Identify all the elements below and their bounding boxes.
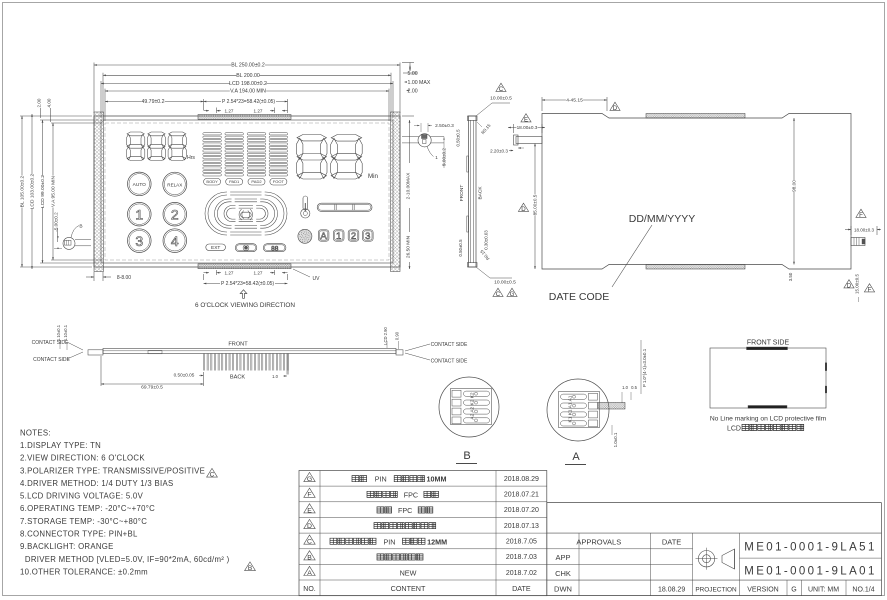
svg-text:9.BACKLIGHT: ORANGE: 9.BACKLIGHT: ORANGE bbox=[20, 542, 114, 551]
svg-text:B: B bbox=[307, 554, 312, 561]
svg-text:0.50±0.5: 0.50±0.5 bbox=[458, 239, 463, 257]
svg-text:4.00: 4.00 bbox=[47, 98, 52, 107]
svg-text:1.0±0.1: 1.0±0.1 bbox=[613, 432, 618, 447]
svg-text:PIN: PIN bbox=[384, 537, 396, 546]
svg-text:PAD2: PAD2 bbox=[251, 179, 262, 184]
svg-text:NOTES:: NOTES: bbox=[20, 428, 51, 437]
svg-text:LCD 198.00±0.2: LCD 198.00±0.2 bbox=[229, 81, 267, 87]
svg-text:RELAX: RELAX bbox=[167, 182, 182, 187]
svg-text:2018.07.20: 2018.07.20 bbox=[504, 507, 539, 514]
svg-text:10.00±0.5: 10.00±0.5 bbox=[494, 280, 516, 286]
svg-text:2018.08.29: 2018.08.29 bbox=[504, 476, 539, 483]
svg-text:BL 250.00±0.2: BL 250.00±0.2 bbox=[231, 63, 265, 69]
svg-text:4: 4 bbox=[171, 233, 179, 249]
svg-text:DRIVER METHOD [VLED=5.0V, IF=9: DRIVER METHOD [VLED=5.0V, IF=90*2mA, 60c… bbox=[20, 555, 230, 564]
svg-text:18.00±0.3: 18.00±0.3 bbox=[854, 227, 874, 232]
svg-text:1.0: 1.0 bbox=[622, 385, 628, 390]
svg-text:6.OPERATING TEMP: -20°C~+70°C: 6.OPERATING TEMP: -20°C~+70°C bbox=[20, 504, 155, 513]
svg-text:2.VIEW DIRECTION: 6 O'CLOCK: 2.VIEW DIRECTION: 6 O'CLOCK bbox=[20, 454, 145, 463]
svg-text:10.00±0.5: 10.00±0.5 bbox=[490, 96, 512, 102]
svg-text:18.08.29: 18.08.29 bbox=[658, 587, 685, 594]
svg-text:CONTENT: CONTENT bbox=[391, 584, 426, 593]
svg-text:BODY: BODY bbox=[206, 179, 218, 184]
svg-text:DD/MM/YYYY: DD/MM/YYYY bbox=[629, 213, 696, 225]
svg-text:C: C bbox=[496, 291, 501, 298]
svg-text:No Line marking on LCD protect: No Line marking on LCD protective film bbox=[710, 416, 827, 423]
svg-text:1.10±0.1: 1.10±0.1 bbox=[56, 324, 61, 341]
svg-text:49.79±0.2: 49.79±0.2 bbox=[141, 99, 164, 105]
svg-text:B: B bbox=[248, 565, 252, 572]
svg-text:CONTACT SIDE: CONTACT SIDE bbox=[431, 359, 468, 365]
svg-text:0.50±0.5: 0.50±0.5 bbox=[456, 129, 461, 147]
svg-text:98.00: 98.00 bbox=[792, 180, 797, 192]
svg-text:E: E bbox=[524, 116, 528, 123]
svg-text:26.50 MIN: 26.50 MIN bbox=[406, 235, 412, 258]
svg-text:D: D bbox=[613, 105, 618, 112]
svg-text:DWN: DWN bbox=[554, 585, 572, 594]
svg-text:LCD 99.00±0.2: LCD 99.00±0.2 bbox=[40, 175, 46, 208]
svg-text:6 O'CLOCK VIEWING DIRECTION: 6 O'CLOCK VIEWING DIRECTION bbox=[195, 302, 295, 309]
svg-text:EXT: EXT bbox=[211, 245, 220, 251]
svg-text:0.5: 0.5 bbox=[631, 385, 637, 390]
svg-text:APP: APP bbox=[555, 553, 570, 562]
svg-text:FRONT: FRONT bbox=[459, 185, 465, 202]
svg-text:1.27: 1.27 bbox=[254, 109, 263, 114]
svg-text:A2 A2 K2 K2: A2 A2 K2 K2 bbox=[470, 392, 476, 420]
svg-text:VERSION: VERSION bbox=[747, 587, 779, 594]
svg-text:V.A 95.00 MIN: V.A 95.00 MIN bbox=[51, 175, 57, 207]
svg-text:A: A bbox=[572, 451, 580, 463]
svg-text:FOOT: FOOT bbox=[273, 179, 285, 184]
svg-text:1: 1 bbox=[435, 155, 438, 160]
svg-text:CONTACT SIDE: CONTACT SIDE bbox=[33, 357, 70, 363]
svg-text:CONTACT SIDE: CONTACT SIDE bbox=[431, 342, 468, 348]
svg-text:1.0: 1.0 bbox=[272, 374, 278, 379]
svg-text:UV: UV bbox=[313, 276, 321, 282]
svg-text:K1 K1 A1 A1: K1 K1 A1 A1 bbox=[568, 395, 574, 422]
svg-text:FPC: FPC bbox=[398, 506, 412, 515]
svg-text:2-10.00MAX: 2-10.00MAX bbox=[406, 172, 412, 199]
svg-text:3.50: 3.50 bbox=[788, 272, 793, 281]
svg-text:5.00: 5.00 bbox=[408, 71, 418, 77]
svg-text:E: E bbox=[307, 507, 312, 514]
svg-text:C: C bbox=[499, 86, 504, 93]
svg-text:5.00±0.2: 5.00±0.2 bbox=[442, 148, 447, 166]
svg-text:2018.07.13: 2018.07.13 bbox=[504, 523, 539, 530]
svg-text:1.00 MAX: 1.00 MAX bbox=[408, 80, 431, 86]
svg-text:F: F bbox=[868, 286, 872, 293]
svg-text:5.LCD DRIVING VOLTAGE: 5.0V: 5.LCD DRIVING VOLTAGE: 5.0V bbox=[20, 492, 144, 501]
svg-text:10MM: 10MM bbox=[427, 475, 447, 484]
svg-text:8-8.00: 8-8.00 bbox=[117, 275, 131, 281]
svg-text:B: B bbox=[463, 450, 470, 462]
svg-text:BACK: BACK bbox=[478, 186, 484, 200]
svg-text:V.A 194.00 MIN: V.A 194.00 MIN bbox=[230, 89, 266, 95]
svg-text:ME01-0001-9LA01: ME01-0001-9LA01 bbox=[744, 566, 877, 578]
svg-text:2018.7.03: 2018.7.03 bbox=[506, 554, 537, 561]
svg-text:1.10±0.1: 1.10±0.1 bbox=[63, 324, 68, 341]
svg-text:2.00: 2.00 bbox=[408, 89, 418, 95]
svg-text:15.00±0.5: 15.00±0.5 bbox=[855, 274, 860, 294]
svg-text:1.27: 1.27 bbox=[254, 271, 263, 276]
svg-text:A: A bbox=[307, 570, 312, 577]
svg-text:LCD 103.00±0.2: LCD 103.00±0.2 bbox=[30, 173, 36, 209]
svg-text:88: 88 bbox=[271, 245, 279, 252]
svg-text:PROJECTION: PROJECTION bbox=[695, 587, 737, 594]
svg-text:NO.: NO. bbox=[303, 586, 316, 593]
svg-text:2018.7.02: 2018.7.02 bbox=[506, 570, 537, 577]
svg-text:C: C bbox=[307, 539, 312, 546]
svg-text:LCD: LCD bbox=[727, 426, 741, 433]
svg-text:C: C bbox=[210, 472, 215, 479]
svg-text:APPROVALS: APPROVALS bbox=[576, 538, 621, 547]
svg-text:1.DISPLAY TYPE: TN: 1.DISPLAY TYPE: TN bbox=[20, 441, 101, 450]
svg-text:PAD1: PAD1 bbox=[229, 179, 240, 184]
svg-text:FRONT SIDE: FRONT SIDE bbox=[747, 340, 790, 347]
svg-text:PIN: PIN bbox=[375, 475, 387, 484]
svg-text:P 1.0*(4-1)=3.0±0.1: P 1.0*(4-1)=3.0±0.1 bbox=[642, 348, 647, 387]
svg-text:Hrs: Hrs bbox=[187, 155, 195, 161]
svg-text:FPC: FPC bbox=[404, 490, 418, 499]
svg-text:D: D bbox=[521, 206, 526, 213]
svg-text:18.00±0.3: 18.00±0.3 bbox=[517, 125, 538, 130]
svg-text:8.CONNECTOR TYPE: PIN+BL: 8.CONNECTOR TYPE: PIN+BL bbox=[20, 530, 138, 539]
svg-text:B: B bbox=[79, 224, 82, 230]
svg-text:1: 1 bbox=[135, 207, 143, 223]
svg-text:69.79±0.5: 69.79±0.5 bbox=[141, 385, 163, 391]
svg-text:D: D bbox=[307, 523, 312, 530]
svg-text:4.DRIVER METHOD: 1/4 DUTY 1/3: 4.DRIVER METHOD: 1/4 DUTY 1/3 BIAS bbox=[20, 479, 173, 488]
svg-text:2.20±0.3: 2.20±0.3 bbox=[490, 149, 508, 154]
svg-text:F: F bbox=[307, 492, 311, 499]
svg-text:DATE CODE: DATE CODE bbox=[549, 291, 609, 303]
svg-text:G: G bbox=[791, 587, 796, 594]
svg-text:BL 200.00: BL 200.00 bbox=[236, 73, 260, 79]
svg-text:10.OTHER TOLERANCE: ±0.2mm: 10.OTHER TOLERANCE: ±0.2mm bbox=[20, 567, 148, 576]
svg-text:1.27: 1.27 bbox=[225, 271, 234, 276]
svg-text:BACK: BACK bbox=[230, 375, 246, 381]
svg-text:0.30±0.03: 0.30±0.03 bbox=[484, 230, 489, 250]
svg-text:DATE: DATE bbox=[512, 584, 531, 593]
svg-text:2: 2 bbox=[351, 231, 356, 242]
svg-text:0.90: 0.90 bbox=[395, 331, 400, 340]
svg-text:FRONT: FRONT bbox=[228, 342, 248, 348]
svg-text:G: G bbox=[307, 476, 312, 483]
svg-text:P 2.54*23=58.42(±0.05): P 2.54*23=58.42(±0.05) bbox=[222, 99, 275, 105]
svg-text:A: A bbox=[320, 231, 327, 242]
svg-text:ME01-0001-9LA51: ME01-0001-9LA51 bbox=[744, 542, 877, 554]
svg-text:Min: Min bbox=[368, 173, 379, 180]
svg-text:7.STORAGE TEMP: -30°C~+80°C: 7.STORAGE TEMP: -30°C~+80°C bbox=[20, 517, 147, 526]
svg-text:LCD 2.90: LCD 2.90 bbox=[383, 326, 388, 344]
svg-text:NO.1/4: NO.1/4 bbox=[852, 587, 874, 594]
svg-text:85.00±0.5: 85.00±0.5 bbox=[533, 194, 538, 215]
svg-text:4-45.15: 4-45.15 bbox=[566, 98, 583, 104]
svg-text:2018.7.05: 2018.7.05 bbox=[506, 539, 537, 546]
svg-text:CHK: CHK bbox=[555, 569, 571, 578]
svg-text:DATE: DATE bbox=[662, 538, 681, 547]
svg-text:2: 2 bbox=[171, 207, 179, 223]
svg-text:UNIT: MM: UNIT: MM bbox=[808, 587, 839, 594]
svg-text:AUTO: AUTO bbox=[133, 182, 147, 188]
svg-text:G: G bbox=[510, 291, 515, 298]
svg-text:NEW: NEW bbox=[400, 569, 417, 578]
svg-text:3.POLARIZER TYPE: TRANSMISSIVE: 3.POLARIZER TYPE: TRANSMISSIVE/POSITIVE bbox=[20, 466, 205, 475]
svg-text:3: 3 bbox=[365, 231, 370, 242]
svg-text:2.00: 2.00 bbox=[37, 98, 42, 107]
svg-text:1.27: 1.27 bbox=[225, 109, 234, 114]
svg-text:P 2.54*23=58.42(±0.05): P 2.54*23=58.42(±0.05) bbox=[221, 281, 274, 287]
svg-text:12MM: 12MM bbox=[427, 537, 447, 546]
svg-text:3: 3 bbox=[135, 233, 143, 249]
svg-text:1: 1 bbox=[336, 231, 341, 242]
svg-text:F: F bbox=[859, 212, 863, 219]
svg-text:2.50±0.3: 2.50±0.3 bbox=[435, 123, 454, 129]
svg-text:0.50±0.05: 0.50±0.05 bbox=[174, 373, 195, 378]
svg-text:D: D bbox=[847, 282, 852, 289]
svg-text:BL 105.00±0.2: BL 105.00±0.2 bbox=[20, 175, 26, 207]
svg-text:2018.07.21: 2018.07.21 bbox=[504, 492, 539, 499]
